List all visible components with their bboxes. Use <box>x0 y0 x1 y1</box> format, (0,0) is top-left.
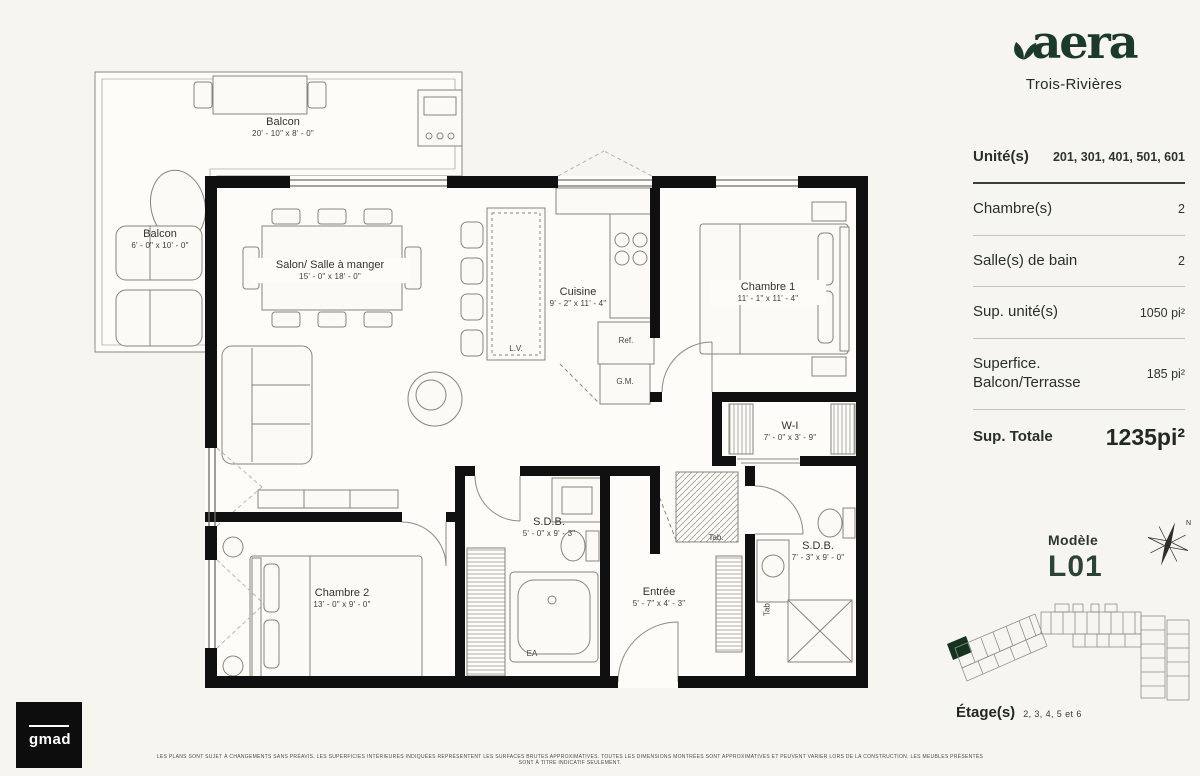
fixture-label-counter-2: Tab. <box>763 594 772 624</box>
floors-value: 2, 3, 4, 5 et 6 <box>1023 709 1082 719</box>
room-label-balcon-top: Balcon 20' - 10" x 8' - 0" <box>233 116 333 139</box>
compass-north-label: N <box>1186 520 1191 527</box>
fixture-label-ea: EA <box>520 649 544 658</box>
brand-block: aera Trois-Rivières <box>958 22 1190 93</box>
room-label-cuisine: Cuisine 9' - 2" x 11' - 4" <box>530 286 626 309</box>
keyplan <box>945 588 1197 702</box>
spec-row-salles-de-bain: Salle(s) de bain 2 <box>973 236 1185 288</box>
spec-row-sup-totale: Sup. Totale 1235pi² <box>973 410 1185 451</box>
spec-row-superficie-balcon: Superfice. Balcon/Terrasse 185 pi² <box>973 339 1185 410</box>
floors-block: Étage(s) 2, 3, 4, 5 et 6 <box>956 704 1082 721</box>
room-label-chambre2: Chambre 2 13' - 0" x 9' - 0" <box>284 587 400 610</box>
fixture-label-fridge: Ref. <box>599 336 653 345</box>
brand-location: Trois-Rivières <box>958 76 1190 93</box>
brand-name: aera <box>1031 22 1136 63</box>
spec-row-chambres: Chambre(s) 2 <box>973 184 1185 236</box>
gmad-logo-text: gmad <box>29 731 71 748</box>
room-label-walkin: W-I 7' - 0" x 3' - 9" <box>742 420 838 443</box>
fixture-label-pantry: G.M. <box>601 377 649 386</box>
room-label-chambre1: Chambre 1 11' - 1" x 11' - 4" <box>710 280 826 305</box>
floorplan-drawing <box>0 0 940 710</box>
spec-row-sup-unite: Sup. unité(s) 1050 pi² <box>973 287 1185 339</box>
spec-row-unites: Unité(s) 201, 301, 401, 501, 601 <box>973 136 1185 184</box>
keyplan-unit-highlight <box>947 636 972 660</box>
model-block: Modèle L01 <box>1048 532 1103 584</box>
room-label-balcon-left: Balcon 6' - 0" x 10' - 0" <box>110 228 210 251</box>
spec-table: Unité(s) 201, 301, 401, 501, 601 Chambre… <box>973 136 1185 451</box>
room-label-sdb1: S.D.B. 5' - 0" x 9' - 3" <box>501 516 597 539</box>
gmad-logo: gmad <box>16 702 82 768</box>
fixture-label-dishwasher: L.V. <box>489 344 543 353</box>
room-label-sdb2: S.D.B. 7' - 3" x 9' - 0" <box>770 540 866 563</box>
compass-icon <box>1146 520 1190 568</box>
model-name: L01 <box>1048 550 1103 584</box>
floors-label: Étage(s) <box>956 704 1015 721</box>
room-label-entree: Entrée 5' - 7" x 4' - 3" <box>611 586 707 609</box>
model-caption: Modèle <box>1048 532 1103 548</box>
keyplan-building <box>955 604 1189 700</box>
brand-logo: aera <box>1011 22 1136 63</box>
room-label-salon: Salon/ Salle à manger 15' - 0" x 18' - 0… <box>250 258 410 283</box>
gmad-logo-bar <box>29 725 69 727</box>
fixture-label-counter-1: Tab. <box>700 533 732 542</box>
disclaimer-text: LES PLANS SONT SUJET À CHANGEMENTS SANS … <box>150 754 990 766</box>
floorplan-sheet: Balcon 20' - 10" x 8' - 0" Balcon 6' - 0… <box>0 0 1200 776</box>
